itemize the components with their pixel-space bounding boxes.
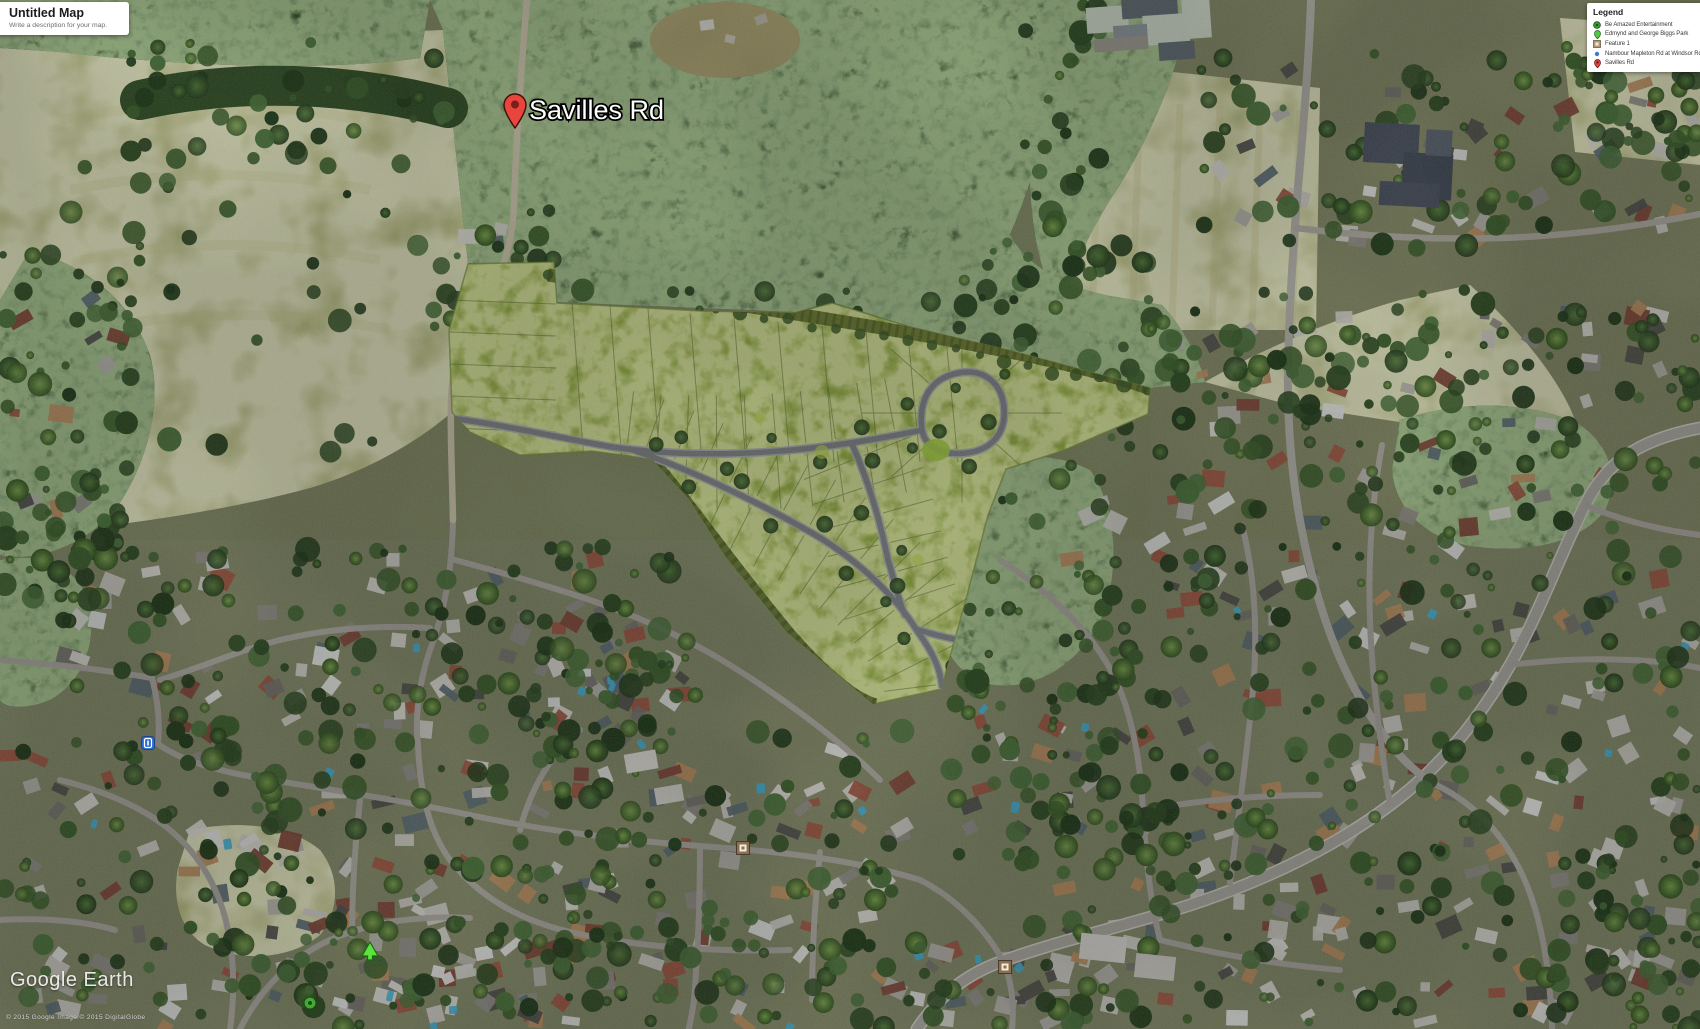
pin-icon — [1593, 59, 1601, 68]
entertainment-circle-icon — [1593, 20, 1601, 29]
feature-marker-south[interactable] — [998, 960, 1012, 979]
map-title: Untitled Map — [9, 6, 123, 20]
map-description-placeholder[interactable]: Write a description for your map. — [9, 22, 123, 30]
legend-panel[interactable]: Legend Be Amazed Entertainment Edmynd an… — [1587, 3, 1700, 72]
legend-title: Legend — [1593, 7, 1696, 17]
legend-item-feature-1[interactable]: Feature 1 — [1593, 39, 1696, 49]
legend-item-label: Edmynd and George Biggs Park — [1605, 31, 1688, 37]
legend-item-nambour-mapleton[interactable]: Nambour Mapleton Rd at Windsor Rd — [1593, 49, 1696, 59]
biggs-park-marker[interactable] — [360, 941, 380, 966]
legend-item-label: Feature 1 — [1605, 41, 1630, 47]
legend-item-be-amazed[interactable]: Be Amazed Entertainment — [1593, 20, 1696, 30]
aerial-imagery[interactable] — [0, 0, 1700, 1029]
savilles-rd-placemark[interactable]: Savilles Rd — [503, 90, 723, 145]
legend-item-biggs-park[interactable]: Edmynd and George Biggs Park — [1593, 30, 1696, 40]
google-earth-watermark: Google Earth — [10, 969, 134, 992]
map-info-panel[interactable]: Untitled Map Write a description for you… — [0, 2, 129, 35]
legend-item-label: Be Amazed Entertainment — [1605, 22, 1672, 28]
road-point-icon — [1593, 49, 1601, 58]
imagery-attribution: © 2015 Google Image © 2015 DigitalGlobe — [6, 1014, 145, 1021]
park-droplet-icon — [1593, 30, 1601, 39]
feature-square-icon — [1593, 39, 1601, 48]
legend-item-label: Savilles Rd — [1605, 60, 1634, 66]
nambour-mapleton-marker[interactable] — [141, 736, 155, 755]
be-amazed-marker[interactable] — [303, 996, 317, 1015]
legend-item-savilles-rd[interactable]: Savilles Rd — [1593, 58, 1696, 68]
red-pin-icon[interactable] — [504, 94, 526, 128]
feature-marker-west[interactable] — [736, 841, 750, 860]
legend-item-label: Nambour Mapleton Rd at Windsor Rd — [1605, 51, 1700, 57]
savilles-rd-label: Savilles Rd — [529, 95, 664, 125]
google-earth-viewport[interactable]: Untitled Map Write a description for you… — [0, 0, 1700, 1029]
